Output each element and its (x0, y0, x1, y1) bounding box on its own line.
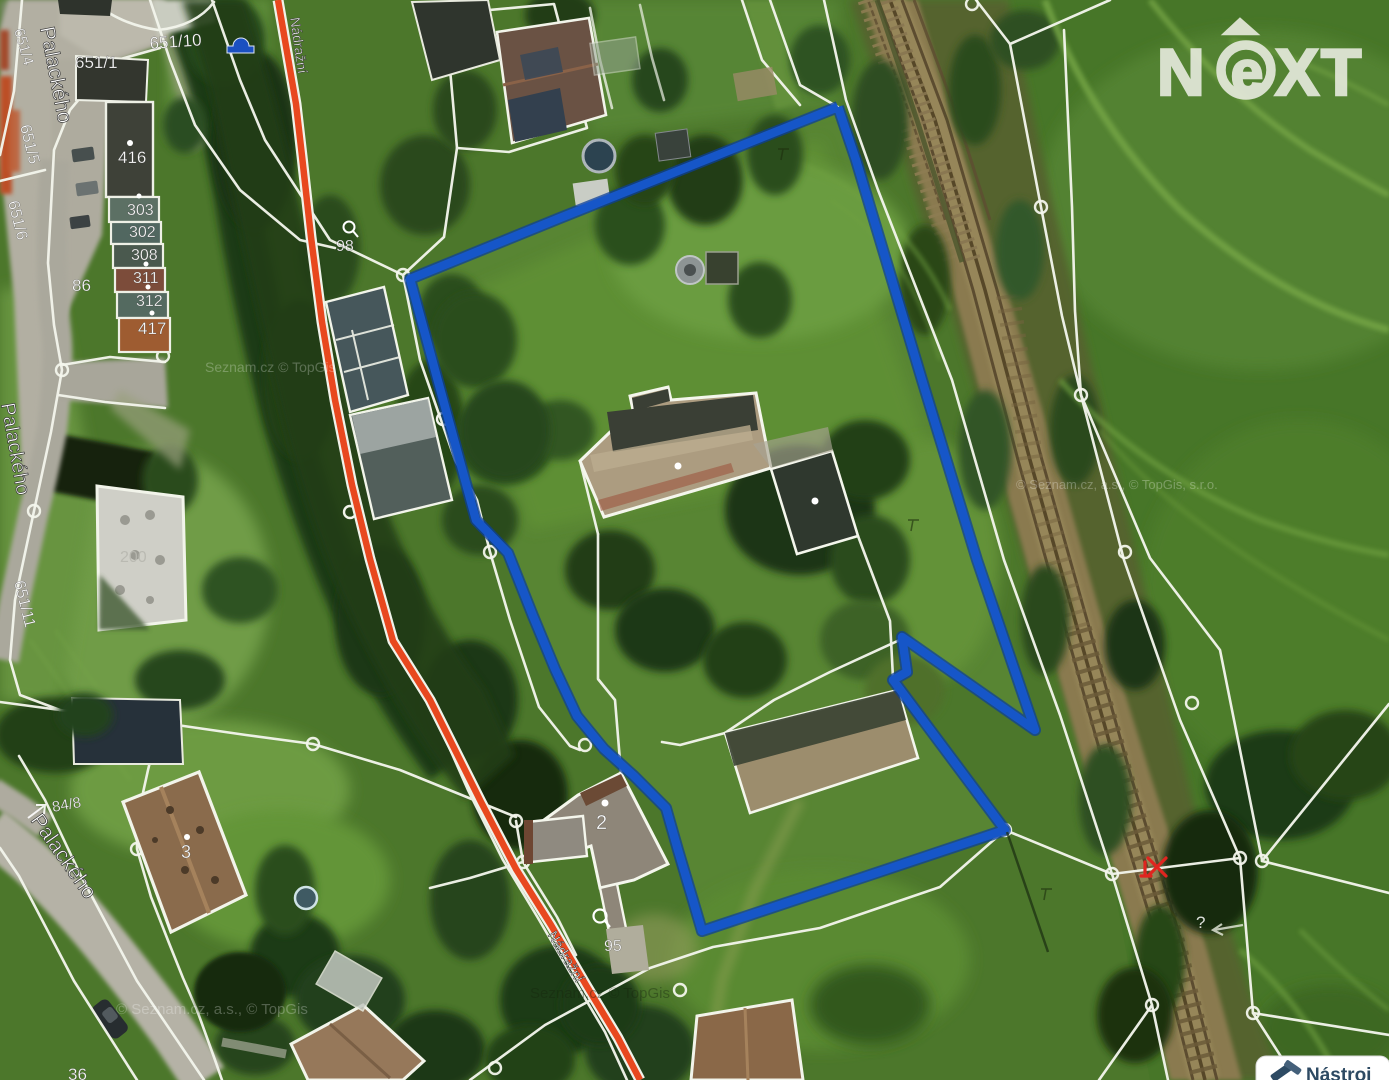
svg-text:302: 302 (129, 224, 156, 241)
svg-text:e: e (1231, 40, 1263, 105)
svg-text:3: 3 (181, 842, 191, 862)
svg-text:?: ? (1196, 913, 1205, 932)
svg-text:312: 312 (136, 293, 163, 310)
svg-text:303: 303 (127, 202, 154, 219)
svg-text:N: N (1157, 35, 1205, 109)
svg-text:417: 417 (138, 319, 166, 338)
svg-text:36: 36 (68, 1065, 87, 1080)
svg-text:Seznam.cz © TopGis: Seznam.cz © TopGis (530, 985, 670, 1002)
svg-text:311: 311 (133, 270, 159, 287)
svg-text:95: 95 (604, 938, 622, 955)
svg-text:Nástroj: Nástroj (1306, 1065, 1371, 1080)
svg-text:308: 308 (131, 247, 158, 264)
svg-text:98: 98 (336, 238, 354, 255)
svg-text:86: 86 (72, 276, 91, 295)
svg-text:© Seznam.cz, a.s., © TopGis, s: © Seznam.cz, a.s., © TopGis, s.r.o. (1016, 477, 1218, 492)
svg-text:416: 416 (118, 148, 146, 167)
svg-text:X: X (1275, 35, 1319, 109)
svg-text:651/1: 651/1 (75, 53, 118, 72)
svg-text:651/10: 651/10 (149, 30, 202, 53)
svg-text:200: 200 (120, 549, 147, 566)
svg-text:2: 2 (596, 812, 607, 834)
svg-text:© Seznam.cz, a.s., © TopGis: © Seznam.cz, a.s., © TopGis (116, 1001, 308, 1018)
svg-text:Seznam.cz © TopGis: Seznam.cz © TopGis (205, 359, 336, 375)
svg-text:T: T (1321, 35, 1361, 109)
